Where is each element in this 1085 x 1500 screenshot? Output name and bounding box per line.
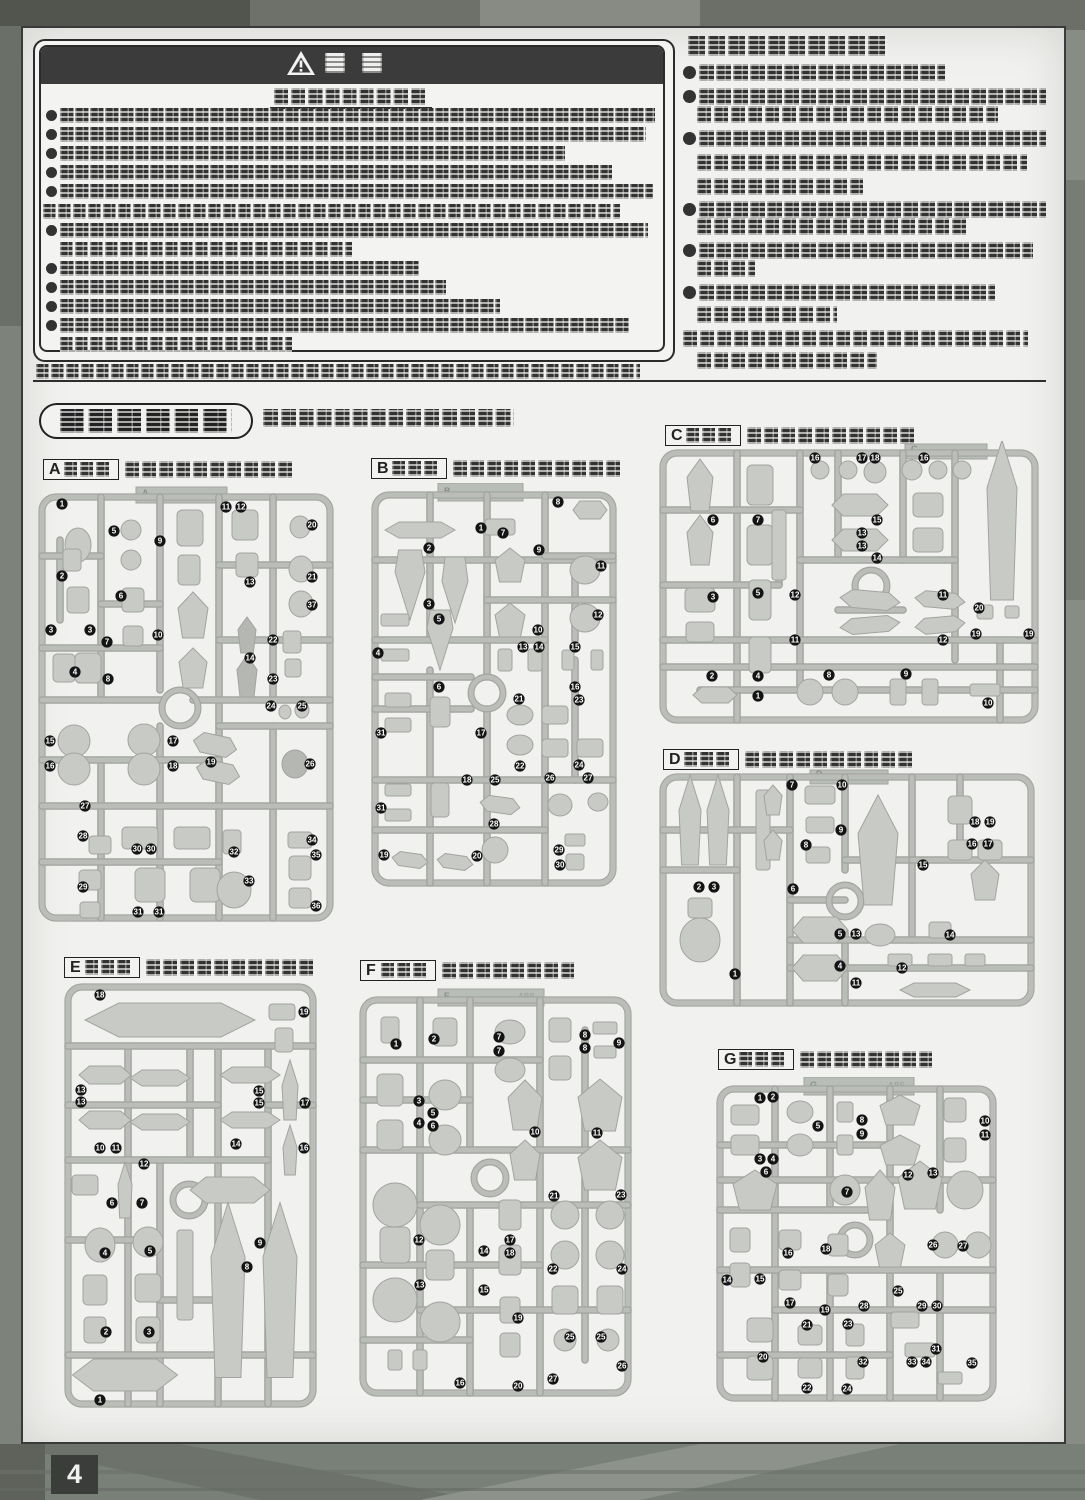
svg-text:22: 22 bbox=[803, 1384, 812, 1393]
svg-text:12: 12 bbox=[140, 1160, 149, 1169]
svg-text:17: 17 bbox=[477, 729, 486, 738]
svg-text:4: 4 bbox=[73, 668, 78, 677]
svg-text:12: 12 bbox=[791, 591, 800, 600]
svg-text:7: 7 bbox=[105, 638, 110, 647]
svg-text:6: 6 bbox=[110, 1199, 115, 1208]
svg-text:31: 31 bbox=[932, 1345, 941, 1354]
svg-text:16: 16 bbox=[811, 454, 820, 463]
svg-text:20: 20 bbox=[473, 852, 482, 861]
svg-text:30: 30 bbox=[133, 845, 142, 854]
svg-text:14: 14 bbox=[232, 1140, 241, 1149]
svg-text:9: 9 bbox=[617, 1039, 622, 1048]
svg-text:18: 18 bbox=[822, 1245, 831, 1254]
svg-text:3: 3 bbox=[49, 626, 54, 635]
svg-text:26: 26 bbox=[306, 760, 315, 769]
svg-text:11: 11 bbox=[981, 1131, 990, 1140]
svg-text:6: 6 bbox=[711, 516, 716, 525]
svg-text:32: 32 bbox=[859, 1358, 868, 1367]
svg-text:12: 12 bbox=[898, 964, 907, 973]
svg-text:34: 34 bbox=[308, 836, 317, 845]
svg-text:17: 17 bbox=[301, 1099, 310, 1108]
svg-text:31: 31 bbox=[134, 908, 143, 917]
svg-text:11: 11 bbox=[597, 562, 606, 571]
svg-text:1: 1 bbox=[60, 500, 65, 509]
svg-text:32: 32 bbox=[230, 848, 239, 857]
svg-text:10: 10 bbox=[534, 626, 543, 635]
svg-text:11: 11 bbox=[222, 503, 231, 512]
svg-text:9: 9 bbox=[158, 537, 163, 546]
svg-text:19: 19 bbox=[514, 1314, 523, 1323]
svg-text:11: 11 bbox=[939, 591, 948, 600]
svg-text:14: 14 bbox=[480, 1247, 489, 1256]
svg-text:20: 20 bbox=[514, 1382, 523, 1391]
svg-text:22: 22 bbox=[549, 1265, 558, 1274]
svg-text:10: 10 bbox=[96, 1144, 105, 1153]
svg-text:28: 28 bbox=[79, 832, 88, 841]
svg-text:15: 15 bbox=[756, 1275, 765, 1284]
svg-text:18: 18 bbox=[871, 454, 880, 463]
svg-text:19: 19 bbox=[972, 630, 981, 639]
svg-text:15: 15 bbox=[255, 1087, 264, 1096]
svg-text:24: 24 bbox=[575, 761, 584, 770]
svg-text:7: 7 bbox=[790, 781, 795, 790]
svg-text:7: 7 bbox=[845, 1188, 850, 1197]
svg-text:19: 19 bbox=[207, 758, 216, 767]
svg-text:26: 26 bbox=[618, 1362, 627, 1371]
svg-text:11: 11 bbox=[852, 979, 861, 988]
svg-text:2: 2 bbox=[710, 672, 715, 681]
svg-text:13: 13 bbox=[858, 529, 867, 538]
svg-text:14: 14 bbox=[535, 643, 544, 652]
svg-text:13: 13 bbox=[77, 1098, 86, 1107]
svg-text:6: 6 bbox=[119, 592, 124, 601]
svg-text:3: 3 bbox=[88, 626, 93, 635]
svg-text:15: 15 bbox=[255, 1099, 264, 1108]
svg-text:25: 25 bbox=[597, 1333, 606, 1342]
svg-text:3: 3 bbox=[147, 1328, 152, 1337]
svg-text:28: 28 bbox=[490, 820, 499, 829]
svg-text:10: 10 bbox=[838, 781, 847, 790]
svg-text:12: 12 bbox=[237, 503, 246, 512]
svg-text:9: 9 bbox=[537, 546, 542, 555]
svg-text:33: 33 bbox=[245, 877, 254, 886]
svg-text:18: 18 bbox=[971, 818, 980, 827]
svg-text:18: 18 bbox=[96, 991, 105, 1000]
svg-text:15: 15 bbox=[46, 737, 55, 746]
svg-text:21: 21 bbox=[515, 695, 524, 704]
svg-text:24: 24 bbox=[618, 1265, 627, 1274]
svg-text:25: 25 bbox=[298, 702, 307, 711]
svg-text:20: 20 bbox=[308, 521, 317, 530]
svg-text:26: 26 bbox=[929, 1241, 938, 1250]
svg-text:9: 9 bbox=[860, 1130, 865, 1139]
svg-text:9: 9 bbox=[904, 670, 909, 679]
svg-text:22: 22 bbox=[269, 636, 278, 645]
svg-text:34: 34 bbox=[922, 1358, 931, 1367]
svg-text:8: 8 bbox=[804, 841, 809, 850]
svg-text:7: 7 bbox=[497, 1033, 502, 1042]
svg-text:12: 12 bbox=[939, 636, 948, 645]
svg-text:29: 29 bbox=[918, 1302, 927, 1311]
svg-text:12: 12 bbox=[415, 1236, 424, 1245]
svg-text:11: 11 bbox=[593, 1129, 602, 1138]
svg-text:1: 1 bbox=[733, 970, 738, 979]
svg-text:19: 19 bbox=[300, 1008, 309, 1017]
svg-text:6: 6 bbox=[791, 885, 796, 894]
svg-text:28: 28 bbox=[860, 1302, 869, 1311]
svg-text:5: 5 bbox=[148, 1247, 153, 1256]
svg-text:23: 23 bbox=[269, 675, 278, 684]
svg-text:25: 25 bbox=[566, 1333, 575, 1342]
svg-text:16: 16 bbox=[920, 454, 929, 463]
svg-text:5: 5 bbox=[838, 930, 843, 939]
svg-text:21: 21 bbox=[803, 1321, 812, 1330]
svg-text:27: 27 bbox=[549, 1375, 558, 1384]
svg-text:19: 19 bbox=[1025, 630, 1034, 639]
svg-text:4: 4 bbox=[771, 1155, 776, 1164]
svg-text:4: 4 bbox=[376, 649, 381, 658]
svg-text:15: 15 bbox=[919, 861, 928, 870]
svg-text:3: 3 bbox=[712, 883, 717, 892]
svg-text:17: 17 bbox=[786, 1299, 795, 1308]
svg-text:31: 31 bbox=[377, 804, 386, 813]
svg-text:3: 3 bbox=[758, 1155, 763, 1164]
svg-text:12: 12 bbox=[594, 611, 603, 620]
svg-text:3: 3 bbox=[711, 593, 716, 602]
svg-text:8: 8 bbox=[827, 671, 832, 680]
svg-text:15: 15 bbox=[480, 1286, 489, 1295]
svg-text:29: 29 bbox=[79, 883, 88, 892]
svg-text:17: 17 bbox=[858, 454, 867, 463]
svg-text:9: 9 bbox=[258, 1239, 263, 1248]
svg-text:3: 3 bbox=[427, 600, 432, 609]
svg-text:2: 2 bbox=[427, 544, 432, 553]
svg-text:8: 8 bbox=[860, 1116, 865, 1125]
svg-text:14: 14 bbox=[723, 1276, 732, 1285]
svg-text:27: 27 bbox=[81, 802, 90, 811]
svg-text:17: 17 bbox=[984, 840, 993, 849]
svg-text:19: 19 bbox=[986, 818, 995, 827]
svg-text:11: 11 bbox=[791, 636, 800, 645]
svg-text:2: 2 bbox=[771, 1093, 776, 1102]
svg-text:7: 7 bbox=[140, 1199, 145, 1208]
svg-text:35: 35 bbox=[968, 1359, 977, 1368]
svg-text:35: 35 bbox=[312, 851, 321, 860]
svg-text:21: 21 bbox=[550, 1192, 559, 1201]
svg-text:3: 3 bbox=[417, 1097, 422, 1106]
svg-text:20: 20 bbox=[759, 1353, 768, 1362]
svg-text:27: 27 bbox=[959, 1242, 968, 1251]
svg-text:27: 27 bbox=[584, 774, 593, 783]
svg-text:25: 25 bbox=[894, 1287, 903, 1296]
svg-text:1: 1 bbox=[394, 1040, 399, 1049]
svg-text:19: 19 bbox=[380, 851, 389, 860]
svg-text:25: 25 bbox=[491, 776, 500, 785]
svg-text:15: 15 bbox=[571, 643, 580, 652]
svg-text:14: 14 bbox=[873, 554, 882, 563]
svg-text:8: 8 bbox=[556, 498, 561, 507]
svg-text:16: 16 bbox=[571, 683, 580, 692]
svg-text:37: 37 bbox=[308, 601, 317, 610]
svg-text:16: 16 bbox=[968, 840, 977, 849]
svg-text:13: 13 bbox=[858, 542, 867, 551]
svg-text:6: 6 bbox=[437, 683, 442, 692]
svg-text:36: 36 bbox=[312, 902, 321, 911]
svg-text:13: 13 bbox=[852, 930, 861, 939]
svg-text:6: 6 bbox=[431, 1122, 436, 1131]
svg-text:31: 31 bbox=[377, 729, 386, 738]
svg-text:14: 14 bbox=[946, 931, 955, 940]
svg-text:10: 10 bbox=[981, 1117, 990, 1126]
svg-text:4: 4 bbox=[838, 962, 843, 971]
svg-text:8: 8 bbox=[106, 675, 111, 684]
svg-text:24: 24 bbox=[843, 1385, 852, 1394]
svg-text:1: 1 bbox=[756, 692, 761, 701]
svg-text:30: 30 bbox=[147, 845, 156, 854]
svg-text:18: 18 bbox=[463, 776, 472, 785]
svg-text:5: 5 bbox=[431, 1109, 436, 1118]
svg-text:30: 30 bbox=[933, 1302, 942, 1311]
svg-text:7: 7 bbox=[756, 516, 761, 525]
svg-text:5: 5 bbox=[112, 527, 117, 536]
svg-text:13: 13 bbox=[77, 1086, 86, 1095]
svg-text:23: 23 bbox=[575, 696, 584, 705]
svg-text:2: 2 bbox=[104, 1328, 109, 1337]
svg-text:13: 13 bbox=[929, 1169, 938, 1178]
svg-text:5: 5 bbox=[756, 589, 761, 598]
svg-text:1: 1 bbox=[98, 1396, 103, 1405]
svg-text:15: 15 bbox=[873, 516, 882, 525]
svg-text:10: 10 bbox=[154, 631, 163, 640]
svg-text:29: 29 bbox=[555, 846, 564, 855]
svg-text:17: 17 bbox=[169, 737, 178, 746]
svg-text:16: 16 bbox=[456, 1379, 465, 1388]
svg-text:10: 10 bbox=[984, 699, 993, 708]
svg-text:6: 6 bbox=[764, 1168, 769, 1177]
svg-text:8: 8 bbox=[245, 1263, 250, 1272]
svg-text:10: 10 bbox=[531, 1128, 540, 1137]
svg-text:5: 5 bbox=[437, 615, 442, 624]
svg-text:20: 20 bbox=[975, 604, 984, 613]
svg-text:18: 18 bbox=[506, 1249, 515, 1258]
svg-text:24: 24 bbox=[267, 702, 276, 711]
svg-text:19: 19 bbox=[821, 1306, 830, 1315]
svg-text:26: 26 bbox=[546, 774, 555, 783]
svg-text:1: 1 bbox=[479, 524, 484, 533]
svg-text:17: 17 bbox=[506, 1236, 515, 1245]
svg-text:5: 5 bbox=[816, 1122, 821, 1131]
svg-text:1: 1 bbox=[758, 1094, 763, 1103]
svg-text:18: 18 bbox=[169, 762, 178, 771]
svg-text:14: 14 bbox=[246, 654, 255, 663]
svg-text:16: 16 bbox=[300, 1144, 309, 1153]
svg-text:23: 23 bbox=[617, 1191, 626, 1200]
svg-text:30: 30 bbox=[556, 861, 565, 870]
svg-text:2: 2 bbox=[60, 572, 65, 581]
svg-text:2: 2 bbox=[697, 883, 702, 892]
svg-text:4: 4 bbox=[417, 1119, 422, 1128]
svg-text:33: 33 bbox=[908, 1358, 917, 1367]
svg-text:7: 7 bbox=[497, 1047, 502, 1056]
svg-text:21: 21 bbox=[308, 573, 317, 582]
svg-text:22: 22 bbox=[516, 762, 525, 771]
svg-text:23: 23 bbox=[844, 1320, 853, 1329]
svg-text:4: 4 bbox=[103, 1249, 108, 1258]
svg-text:13: 13 bbox=[519, 643, 528, 652]
svg-text:11: 11 bbox=[112, 1144, 121, 1153]
svg-text:31: 31 bbox=[155, 908, 164, 917]
svg-text:8: 8 bbox=[583, 1044, 588, 1053]
svg-text:16: 16 bbox=[46, 762, 55, 771]
svg-text:13: 13 bbox=[246, 578, 255, 587]
svg-text:2: 2 bbox=[432, 1035, 437, 1044]
svg-text:9: 9 bbox=[839, 826, 844, 835]
svg-text:16: 16 bbox=[784, 1249, 793, 1258]
svg-text:12: 12 bbox=[904, 1171, 913, 1180]
svg-text:7: 7 bbox=[501, 529, 506, 538]
svg-text:4: 4 bbox=[756, 672, 761, 681]
svg-text:13: 13 bbox=[416, 1281, 425, 1290]
svg-text:8: 8 bbox=[583, 1031, 588, 1040]
